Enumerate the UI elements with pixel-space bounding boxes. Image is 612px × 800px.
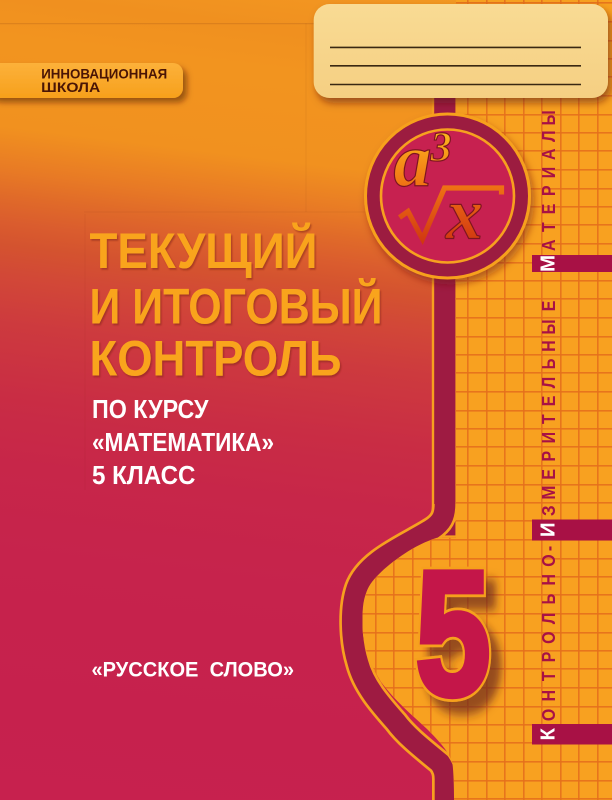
svg-text:Р: Р — [538, 451, 559, 462]
svg-text:О: О — [538, 554, 559, 566]
svg-text:Е: Е — [538, 204, 559, 215]
svg-text:И: И — [538, 167, 559, 179]
svg-text:5 КЛАСС: 5 КЛАСС — [92, 460, 196, 490]
svg-text:-: - — [538, 546, 559, 551]
svg-text:А: А — [538, 149, 559, 161]
svg-text:М: М — [537, 255, 560, 272]
svg-text:a: a — [394, 119, 432, 203]
svg-text:Н: Н — [538, 690, 559, 702]
svg-text:И: И — [538, 432, 559, 444]
svg-text:И ИТОГОВЫЙ: И ИТОГОВЫЙ — [90, 278, 383, 335]
svg-text:ТЕКУЩИЙ: ТЕКУЩИЙ — [90, 222, 318, 279]
svg-text:З: З — [538, 505, 559, 516]
svg-text:Ь: Ь — [538, 359, 559, 370]
svg-text:3: 3 — [430, 125, 452, 171]
svg-text:Л: Л — [538, 613, 559, 625]
svg-text:Н: Н — [538, 340, 559, 352]
svg-text:Ы: Ы — [538, 320, 559, 335]
svg-text:Е: Е — [538, 469, 559, 480]
svg-text:Р: Р — [538, 652, 559, 663]
svg-text:Т: Т — [538, 222, 559, 232]
svg-text:О: О — [538, 709, 559, 721]
svg-text:КОНТРОЛЬ: КОНТРОЛЬ — [90, 330, 342, 386]
svg-text:Ы: Ы — [538, 110, 559, 125]
svg-text:К: К — [537, 727, 560, 740]
svg-text:Е: Е — [538, 301, 559, 312]
svg-text:«МАТЕМАТИКА»: «МАТЕМАТИКА» — [92, 427, 274, 457]
svg-text:О: О — [538, 632, 559, 644]
svg-text:«РУССКОЕ СЛОВО»: «РУССКОЕ СЛОВО» — [92, 658, 295, 682]
svg-text:А: А — [538, 240, 559, 252]
svg-text:Н: Н — [538, 574, 559, 586]
svg-text:Л: Л — [538, 377, 559, 389]
svg-text:Р: Р — [538, 185, 559, 196]
svg-text:Л: Л — [538, 130, 559, 142]
svg-text:М: М — [538, 486, 559, 500]
svg-text:5: 5 — [416, 535, 490, 732]
svg-text:Т: Т — [538, 671, 559, 681]
svg-text:ПО КУРСУ: ПО КУРСУ — [92, 394, 209, 424]
svg-text:Т: Т — [538, 414, 559, 424]
svg-text:ШКОЛА: ШКОЛА — [41, 79, 100, 95]
svg-text:Е: Е — [538, 396, 559, 407]
svg-text:Ь: Ь — [538, 594, 559, 605]
svg-text:И: И — [537, 522, 560, 537]
